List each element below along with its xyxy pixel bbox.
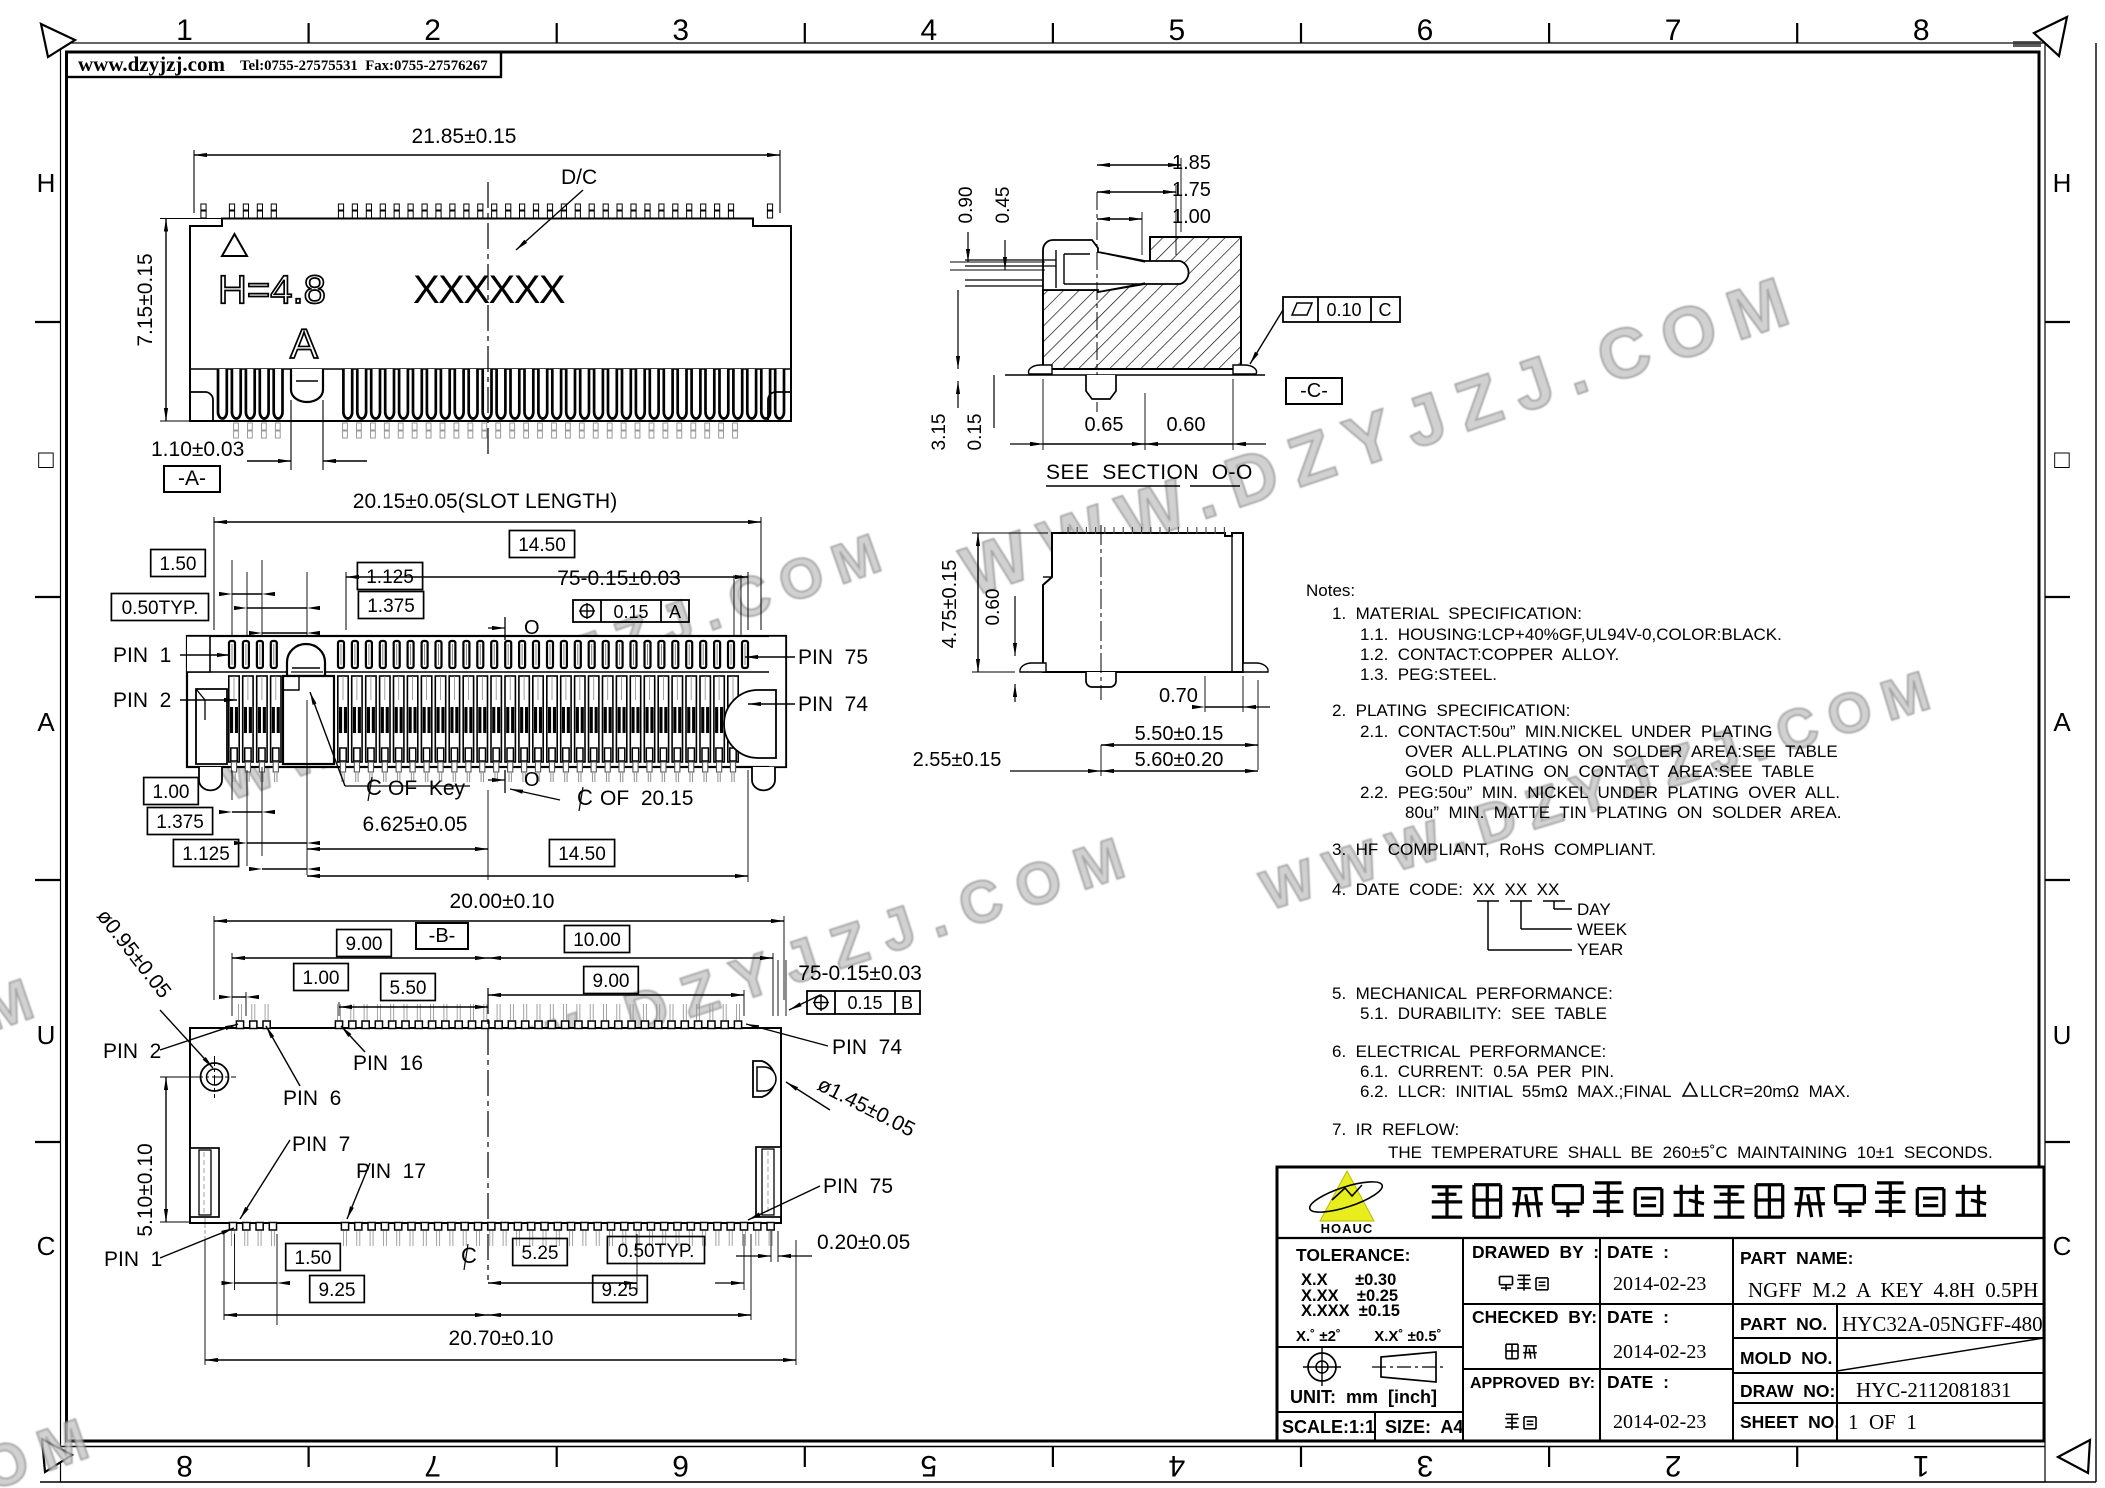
svg-text:DRAWED BY :: DRAWED BY : xyxy=(1472,1242,1599,1262)
svg-text:PIN 2: PIN 2 xyxy=(103,1040,161,1063)
svg-text:0.20±0.05: 0.20±0.05 xyxy=(817,1231,910,1254)
svg-text:1.10±0.03: 1.10±0.03 xyxy=(151,438,244,461)
svg-text:0.15: 0.15 xyxy=(847,993,882,1013)
svg-text:2.2. PEG:50u” MIN. NICKEL: 2.2. PEG:50u” MIN. NICKEL UNDER PLATING … xyxy=(1360,783,1840,802)
svg-text:1.00: 1.00 xyxy=(303,968,340,989)
svg-text:DATE :: DATE : xyxy=(1607,1242,1669,1262)
svg-text:H: H xyxy=(37,168,56,198)
svg-text:1 OF 1: 1 OF 1 xyxy=(1848,1410,1917,1434)
svg-text:OF Key: OF Key xyxy=(388,777,466,800)
svg-text:XXXXXX: XXXXXX xyxy=(413,268,565,312)
svg-text:2014-02-23: 2014-02-23 xyxy=(1613,1273,1706,1295)
svg-text:YEAR: YEAR xyxy=(1577,940,1623,959)
svg-text:PIN 74: PIN 74 xyxy=(832,1036,902,1059)
svg-text:DRAW NO:: DRAW NO: xyxy=(1740,1381,1835,1401)
svg-text:1.00: 1.00 xyxy=(1172,206,1211,228)
svg-text:C: C xyxy=(37,1231,56,1261)
svg-text:Tel:0755-27575531 Fax:0755-27: Tel:0755-27575531 Fax:0755-27576267 xyxy=(240,58,488,74)
svg-text:1.75: 1.75 xyxy=(1172,179,1211,201)
svg-text:75-0.15±0.03: 75-0.15±0.03 xyxy=(557,567,681,590)
svg-text:PART NO.: PART NO. xyxy=(1740,1314,1827,1334)
svg-text:PART NAME:: PART NAME: xyxy=(1740,1248,1853,1268)
svg-text:MOLD NO.: MOLD NO. xyxy=(1740,1348,1832,1368)
svg-text:7: 7 xyxy=(1665,14,1682,47)
svg-text:1.2. CONTACT:COPPER ALLOY.: 1.2. CONTACT:COPPER ALLOY. xyxy=(1360,645,1619,664)
svg-text:1: 1 xyxy=(176,14,193,47)
svg-text:0.45: 0.45 xyxy=(993,187,1014,224)
svg-text:C: C xyxy=(2053,1231,2072,1261)
svg-text:4.75±0.15: 4.75±0.15 xyxy=(939,560,961,649)
svg-text:9.25: 9.25 xyxy=(602,1280,639,1301)
svg-text:PIN 75: PIN 75 xyxy=(823,1175,893,1198)
svg-text:80u” MIN. MATTE TIN PLATIN: 80u” MIN. MATTE TIN PLATING ON SOLDER AR… xyxy=(1405,803,1841,822)
svg-text:DAY: DAY xyxy=(1577,900,1611,919)
svg-text:6: 6 xyxy=(1417,14,1434,47)
svg-text:20.70±0.10: 20.70±0.10 xyxy=(449,1327,554,1350)
svg-text:OVER ALL.PLATING ON SOLDER: OVER ALL.PLATING ON SOLDER AREA:SEE TABL… xyxy=(1405,742,1838,761)
svg-text:5.50±0.15: 5.50±0.15 xyxy=(1135,723,1224,745)
svg-text:4. DATE CODE: XX XX XX: 4. DATE CODE: XX XX XX xyxy=(1332,880,1559,899)
svg-text:1.85: 1.85 xyxy=(1172,152,1211,174)
svg-text:2: 2 xyxy=(1665,1449,1682,1482)
svg-text:5.1. DURABILITY: SEE TABLE: 5.1. DURABILITY: SEE TABLE xyxy=(1360,1004,1607,1023)
svg-text:1.125: 1.125 xyxy=(182,844,230,865)
svg-text:UNIT: mm [inch]: UNIT: mm [inch] xyxy=(1290,1387,1437,1407)
svg-text:7: 7 xyxy=(424,1449,441,1482)
svg-text:6. ELECTRICAL PERFORMANCE:: 6. ELECTRICAL PERFORMANCE: xyxy=(1332,1042,1606,1061)
svg-text:1: 1 xyxy=(1913,1449,1930,1482)
svg-text:1.00: 1.00 xyxy=(153,782,190,803)
svg-text:LLCR=20mΩ MAX.: LLCR=20mΩ MAX. xyxy=(1700,1082,1850,1101)
svg-text:0.15: 0.15 xyxy=(613,602,648,622)
svg-text:0.90: 0.90 xyxy=(956,187,977,224)
svg-text:0.65: 0.65 xyxy=(1085,414,1124,436)
svg-text:2: 2 xyxy=(424,14,441,47)
svg-text:SHEET NO.: SHEET NO. xyxy=(1740,1412,1839,1432)
svg-text:0.10: 0.10 xyxy=(1326,300,1361,320)
svg-text:A: A xyxy=(37,707,55,737)
svg-text:0.60: 0.60 xyxy=(983,589,1004,626)
svg-text:2.55±0.15: 2.55±0.15 xyxy=(913,749,1002,771)
svg-text:B: B xyxy=(901,993,913,1013)
svg-text:DATE :: DATE : xyxy=(1607,1307,1669,1327)
svg-text:6.625±0.05: 6.625±0.05 xyxy=(363,813,468,836)
svg-text:APPROVED BY:: APPROVED BY: xyxy=(1470,1375,1595,1392)
svg-text:9.00: 9.00 xyxy=(346,934,383,955)
svg-text:1.375: 1.375 xyxy=(367,596,415,617)
svg-text:5.50: 5.50 xyxy=(390,978,427,999)
svg-text:7. IR REFLOW:: 7. IR REFLOW: xyxy=(1332,1120,1459,1139)
svg-text:1. MATERIAL SPECIFICATION:: 1. MATERIAL SPECIFICATION: xyxy=(1332,604,1582,623)
svg-text:4: 4 xyxy=(1169,1449,1186,1482)
svg-text:HYC-2112081831: HYC-2112081831 xyxy=(1856,1378,2012,1402)
svg-text:DATE :: DATE : xyxy=(1607,1372,1669,1392)
svg-text:6.2. LLCR: INITIAL 55mΩ MA: 6.2. LLCR: INITIAL 55mΩ MAX.;FINAL xyxy=(1360,1082,1672,1101)
svg-text:H=4.8: H=4.8 xyxy=(218,268,326,312)
svg-text:0.15: 0.15 xyxy=(965,414,986,451)
svg-text:1.375: 1.375 xyxy=(156,812,204,833)
svg-text:OF 20.15: OF 20.15 xyxy=(600,787,693,810)
svg-text:5.60±0.20: 5.60±0.20 xyxy=(1135,749,1224,771)
svg-text:3.15: 3.15 xyxy=(929,414,950,451)
svg-text:PIN 75: PIN 75 xyxy=(798,646,868,669)
svg-text:PIN 1: PIN 1 xyxy=(104,1248,162,1271)
svg-text:Notes:: Notes: xyxy=(1306,581,1355,600)
svg-text:0.50TYP.: 0.50TYP. xyxy=(618,1241,695,1262)
svg-text:www.dzyjzj.com: www.dzyjzj.com xyxy=(78,52,225,76)
svg-text:CHECKED BY:: CHECKED BY: xyxy=(1472,1307,1597,1327)
svg-text:1.125: 1.125 xyxy=(366,567,414,588)
svg-text:NGFF M.2 A KEY 4.8H 0.5PH: NGFF M.2 A KEY 4.8H 0.5PH xyxy=(1748,1278,2038,1302)
svg-text:9.00: 9.00 xyxy=(593,971,630,992)
svg-text:21.85±0.15: 21.85±0.15 xyxy=(412,125,517,148)
svg-text:14.50: 14.50 xyxy=(558,844,606,865)
svg-text:0.50TYP.: 0.50TYP. xyxy=(122,598,199,619)
svg-text:20.00±0.10: 20.00±0.10 xyxy=(450,890,555,913)
svg-text:-A-: -A- xyxy=(178,467,206,490)
svg-text:A: A xyxy=(290,320,318,367)
svg-text:4: 4 xyxy=(920,14,937,47)
svg-text:PIN 2: PIN 2 xyxy=(113,689,171,712)
svg-text:PIN 1: PIN 1 xyxy=(113,644,171,667)
svg-text:THE TEMPERATURE SHALL BE 2: THE TEMPERATURE SHALL BE 260±5˚C MAINTAI… xyxy=(1388,1143,1993,1162)
svg-text:TOLERANCE:: TOLERANCE: xyxy=(1296,1245,1410,1265)
svg-text:X.˚ ±2˚ X.X˚ ±0.5˚: X.˚ ±2˚ X.X˚ ±0.5˚ xyxy=(1296,1328,1442,1345)
svg-text:-B-: -B- xyxy=(429,925,456,947)
svg-text:5: 5 xyxy=(1169,14,1186,47)
svg-text:H: H xyxy=(2053,168,2072,198)
svg-text:U: U xyxy=(2053,1020,2072,1050)
svg-text:5. MECHANICAL PERFORMANCE:: 5. MECHANICAL PERFORMANCE: xyxy=(1332,984,1613,1003)
svg-text:GOLD PLATING ON CONTACT AR: GOLD PLATING ON CONTACT AREA:SEE TABLE xyxy=(1405,762,1814,781)
svg-text:3: 3 xyxy=(1417,1449,1434,1482)
svg-text:5.25: 5.25 xyxy=(522,1243,559,1264)
svg-text:6: 6 xyxy=(672,1449,689,1482)
svg-text:2014-02-23: 2014-02-23 xyxy=(1613,1341,1706,1363)
svg-text:□: □ xyxy=(38,444,54,474)
svg-text:-C-: -C- xyxy=(1300,380,1328,402)
svg-text:20.15±0.05(SLOT LENGTH): 20.15±0.05(SLOT LENGTH) xyxy=(353,490,617,513)
svg-text:10.00: 10.00 xyxy=(573,930,621,951)
svg-text:D/C: D/C xyxy=(561,166,597,189)
svg-text:1.1. HOUSING:LCP+40%GF,UL94V-: 1.1. HOUSING:LCP+40%GF,UL94V-0,COLOR:BLA… xyxy=(1360,625,1782,644)
svg-text:O: O xyxy=(524,769,540,791)
svg-text:HYC32A-05NGFF-480: HYC32A-05NGFF-480 xyxy=(1842,1312,2043,1336)
svg-text:6.1. CURRENT: 0.5A PER PIN: 6.1. CURRENT: 0.5A PER PIN. xyxy=(1360,1062,1614,1081)
svg-text:9.25: 9.25 xyxy=(319,1280,356,1301)
svg-text:2014-02-23: 2014-02-23 xyxy=(1613,1411,1706,1433)
svg-text:75-0.15±0.03: 75-0.15±0.03 xyxy=(798,962,922,985)
svg-text:3: 3 xyxy=(672,14,689,47)
svg-text:HOAUC: HOAUC xyxy=(1321,1221,1374,1236)
svg-text:C: C xyxy=(461,1243,477,1268)
svg-text:PIN 16: PIN 16 xyxy=(353,1052,423,1075)
svg-text:2.1. CONTACT:50u” MIN.NICKEL: 2.1. CONTACT:50u” MIN.NICKEL UNDER PLATI… xyxy=(1360,722,1773,741)
svg-text:8: 8 xyxy=(176,1449,193,1482)
svg-text:14.50: 14.50 xyxy=(518,535,566,556)
svg-text:O: O xyxy=(524,617,540,639)
svg-text:A: A xyxy=(669,602,681,622)
svg-text:SIZE: A4: SIZE: A4 xyxy=(1385,1417,1463,1437)
svg-text:8: 8 xyxy=(1913,14,1930,47)
svg-text:0.60: 0.60 xyxy=(1167,414,1206,436)
svg-text:1.3. PEG:STEEL.: 1.3. PEG:STEEL. xyxy=(1360,665,1497,684)
svg-text:□: □ xyxy=(2054,444,2070,474)
svg-text:WEEK: WEEK xyxy=(1577,920,1628,939)
svg-text:A: A xyxy=(2053,707,2071,737)
svg-text:SEE SECTION O-O: SEE SECTION O-O xyxy=(1046,461,1253,484)
svg-text:PIN 74: PIN 74 xyxy=(798,693,868,716)
svg-text:PIN 7: PIN 7 xyxy=(292,1133,350,1156)
svg-text:7.15±0.15: 7.15±0.15 xyxy=(134,253,157,346)
svg-text:2. PLATING SPECIFICATION:: 2. PLATING SPECIFICATION: xyxy=(1332,701,1570,720)
svg-text:5: 5 xyxy=(920,1449,937,1482)
svg-text:SCALE:1:1: SCALE:1:1 xyxy=(1282,1417,1375,1437)
svg-text:C: C xyxy=(1379,300,1392,320)
svg-text:0.70: 0.70 xyxy=(1159,685,1198,707)
svg-text:1.50: 1.50 xyxy=(295,1248,332,1269)
svg-text:PIN 6: PIN 6 xyxy=(283,1087,341,1110)
svg-text:3. HF COMPLIANT, RoHS COMP: 3. HF COMPLIANT, RoHS COMPLIANT. xyxy=(1332,840,1656,859)
svg-text:1.50: 1.50 xyxy=(160,554,197,575)
svg-text:5.10±0.10: 5.10±0.10 xyxy=(134,1143,157,1236)
svg-text:X.XXX ±0.15: X.XXX ±0.15 xyxy=(1301,1302,1400,1320)
